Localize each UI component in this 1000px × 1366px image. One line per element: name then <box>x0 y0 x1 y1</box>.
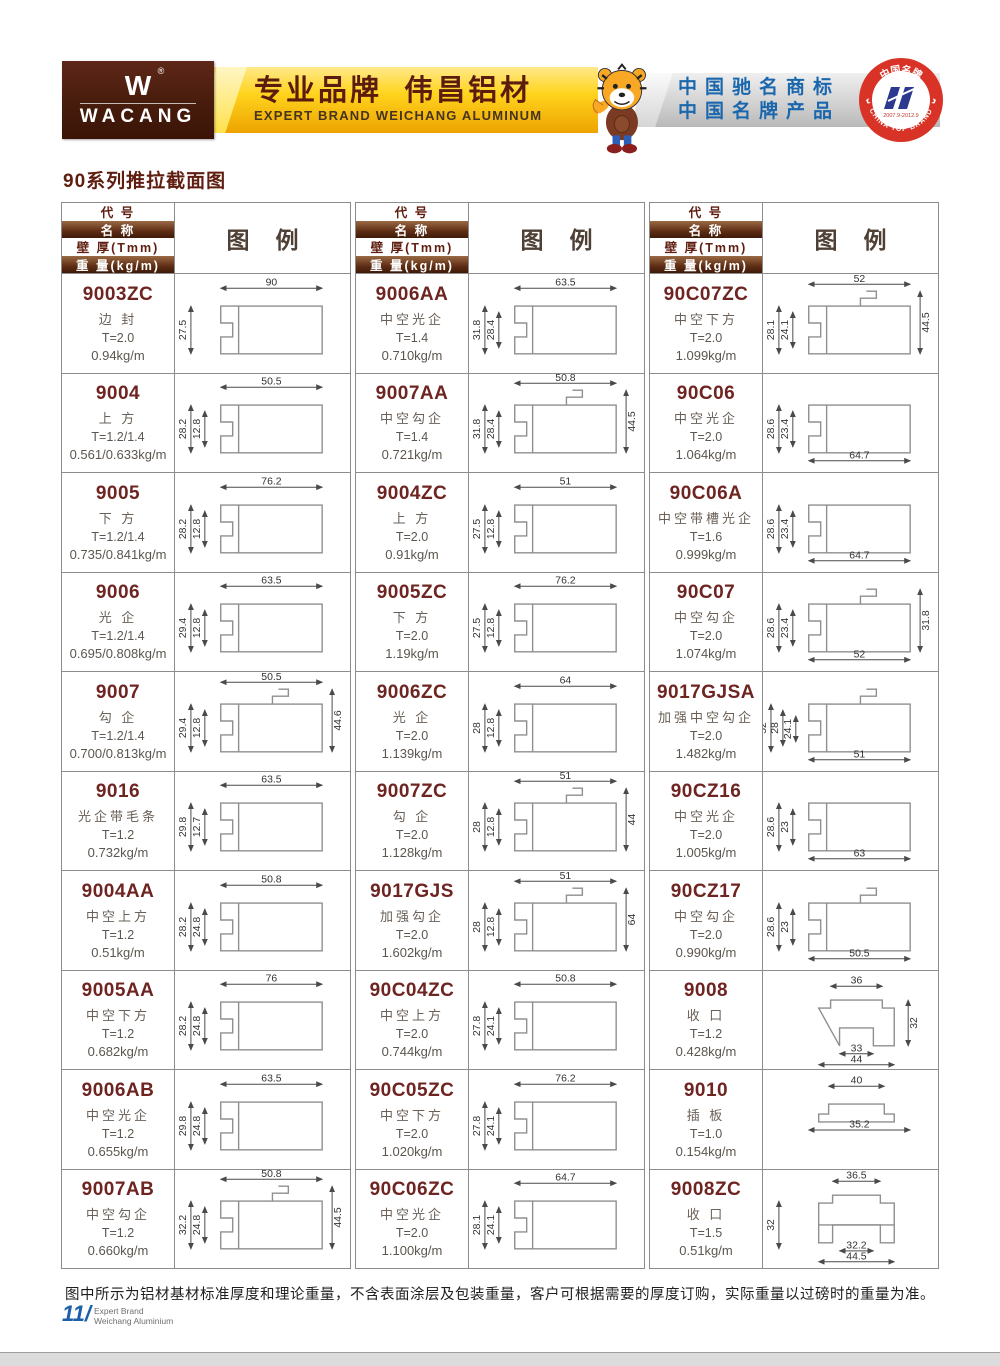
product-name: 中空勾企 <box>674 607 738 626</box>
product-info: 90C04ZC中空上方T=2.00.744kg/m <box>356 970 468 1070</box>
product-thickness: T=2.0 <box>102 331 134 345</box>
svg-text:24.1: 24.1 <box>486 1016 497 1037</box>
product-code: 90C04ZC <box>370 980 455 1002</box>
product-name: 光 企 <box>393 707 432 726</box>
product-thickness: T=2.0 <box>690 828 722 842</box>
product-info: 9006光 企T=1.2/1.40.695/0.808kg/m <box>62 572 174 672</box>
product-weight: 0.732kg/m <box>88 845 149 860</box>
svg-text:24.8: 24.8 <box>192 1115 203 1136</box>
footer-note: 图中所示为铝材基材标准厚度和理论重量，不含表面涂层及包装重量，客户可根据需要的厚… <box>0 1283 1000 1304</box>
profile-diagram: 50.831.828.444.5 <box>468 373 644 473</box>
profile-column-1: 代 号名 称壁 厚(Tmm)重 量(kg/m)图例9003ZC边 封T=2.00… <box>61 202 351 1269</box>
profile-column-2: 代 号名 称壁 厚(Tmm)重 量(kg/m)图例9006AA中空光企T=1.4… <box>355 202 645 1269</box>
product-weight: 0.999kg/m <box>676 547 737 562</box>
product-thickness: T=2.0 <box>690 430 722 444</box>
profile-diagram: 28.623.464.7 <box>762 472 938 572</box>
product-thickness: T=2.0 <box>396 729 428 743</box>
product-info: 90C07ZC中空下方T=2.01.099kg/m <box>650 273 762 373</box>
svg-text:28: 28 <box>472 722 483 734</box>
svg-text:51: 51 <box>560 476 572 487</box>
product-code: 90CZ17 <box>671 881 742 903</box>
svg-text:12.8: 12.8 <box>192 419 203 440</box>
product-info: 9006AB中空光企T=1.20.655kg/m <box>62 1069 174 1169</box>
profile-diagram: 64.728.124.1 <box>468 1169 644 1269</box>
registered-mark: ® <box>158 67 165 76</box>
svg-text:31.8: 31.8 <box>921 610 932 631</box>
profile-diagram: 50.528.212.8 <box>174 373 350 473</box>
product-name: 上 方 <box>99 408 138 427</box>
slogan-chinese: 专业品牌 伟昌铝材 <box>254 77 598 107</box>
profile-diagram: 76.227.824.1 <box>468 1069 644 1169</box>
product-weight: 1.005kg/m <box>676 845 737 860</box>
header-code: 代 号 <box>356 203 468 221</box>
honor-banner: 中国驰名商标 中国名牌产品 中国名牌 CHINA TOP BRAND 2007.… <box>644 73 940 127</box>
product-code: 9008 <box>684 980 728 1002</box>
product-weight: 0.51kg/m <box>679 1243 732 1258</box>
svg-text:44.5: 44.5 <box>846 1252 867 1263</box>
product-code: 90CZ16 <box>671 781 742 803</box>
product-code: 9007ZC <box>377 781 448 803</box>
product-name: 中空下方 <box>380 1105 444 1124</box>
profile-diagram: 5127.512.8 <box>468 472 644 572</box>
svg-text:31.8: 31.8 <box>472 319 483 340</box>
profile-diagram: 50.832.224.844.5 <box>174 1169 350 1269</box>
product-name: 勾 企 <box>393 806 432 825</box>
svg-text:64.7: 64.7 <box>555 1173 576 1184</box>
profile-diagram: 5228.124.144.5 <box>762 273 938 373</box>
product-code: 90C05ZC <box>370 1080 455 1102</box>
profile-column-3: 代 号名 称壁 厚(Tmm)重 量(kg/m)图例90C07ZC中空下方T=2.… <box>649 202 939 1269</box>
product-thickness: T=1.2 <box>102 1226 134 1240</box>
header-weight: 重 量(kg/m) <box>356 256 468 274</box>
product-info: 9007AA中空勾企T=1.40.721kg/m <box>356 373 468 473</box>
product-thickness: T=2.0 <box>690 629 722 643</box>
header-code: 代 号 <box>650 203 762 221</box>
header-legend: 图例 <box>468 203 644 273</box>
product-thickness: T=2.0 <box>396 629 428 643</box>
product-thickness: T=1.2 <box>102 1027 134 1041</box>
svg-text:12.8: 12.8 <box>192 717 203 738</box>
svg-text:76.2: 76.2 <box>555 1073 576 1084</box>
svg-text:63: 63 <box>854 849 866 860</box>
svg-text:51: 51 <box>560 771 572 782</box>
product-info: 9017GJS加强勾企T=2.01.602kg/m <box>356 870 468 970</box>
product-name: 中空上方 <box>86 906 150 925</box>
header-legend: 图例 <box>174 203 350 273</box>
svg-text:32.2: 32.2 <box>178 1215 189 1236</box>
product-code: 9016 <box>96 781 140 803</box>
product-weight: 0.700/0.813kg/m <box>70 746 167 761</box>
product-code: 9003ZC <box>83 284 154 306</box>
svg-text:27.5: 27.5 <box>472 518 483 539</box>
profile-diagram: 36.53232.244.5 <box>762 1169 938 1269</box>
product-name: 光 企 <box>99 607 138 626</box>
product-name: 中空光企 <box>380 309 444 328</box>
svg-text:28.6: 28.6 <box>766 618 777 639</box>
svg-text:50.5: 50.5 <box>261 377 282 388</box>
profile-diagram: 4035.2 <box>762 1069 938 1169</box>
header-code: 代 号 <box>62 203 174 221</box>
product-name: 勾 企 <box>99 707 138 726</box>
svg-text:28: 28 <box>770 722 781 734</box>
svg-text:33: 33 <box>851 1044 863 1055</box>
profile-diagram: 28.62350.5 <box>762 870 938 970</box>
svg-text:28.2: 28.2 <box>178 916 189 937</box>
header-name: 名 称 <box>356 221 468 239</box>
product-info: 9006ZC光 企T=2.01.139kg/m <box>356 671 468 771</box>
product-thickness: T=1.4 <box>396 430 428 444</box>
header-thickness: 壁 厚(Tmm) <box>650 238 762 256</box>
svg-text:64: 64 <box>560 675 572 686</box>
svg-text:27.5: 27.5 <box>178 319 189 340</box>
product-info: 9010插 板T=1.00.154kg/m <box>650 1069 762 1169</box>
svg-text:44.5: 44.5 <box>921 312 932 333</box>
product-info: 9005AA中空下方T=1.20.682kg/m <box>62 970 174 1070</box>
product-weight: 0.154kg/m <box>676 1144 737 1159</box>
product-weight: 1.139kg/m <box>382 746 443 761</box>
page-title: 90系列推拉截面图 <box>63 166 226 193</box>
product-weight: 0.655kg/m <box>88 1144 149 1159</box>
product-thickness: T=1.2 <box>102 828 134 842</box>
product-weight: 0.990kg/m <box>676 945 737 960</box>
svg-text:29.4: 29.4 <box>178 618 189 639</box>
product-name: 中空下方 <box>674 309 738 328</box>
svg-text:27.8: 27.8 <box>472 1016 483 1037</box>
page-number-block: 11 / Expert Brand Weichang Aluminium <box>62 1303 173 1326</box>
product-info: 9005下 方T=1.2/1.40.735/0.841kg/m <box>62 472 174 572</box>
profile-diagram: 512812.844 <box>468 771 644 871</box>
column-header: 代 号名 称壁 厚(Tmm)重 量(kg/m) <box>356 203 468 273</box>
profile-diagram: 63.531.828.4 <box>468 273 644 373</box>
product-info: 9005ZC下 方T=2.01.19kg/m <box>356 572 468 672</box>
product-thickness: T=1.0 <box>690 1127 722 1141</box>
product-weight: 1.074kg/m <box>676 646 737 661</box>
product-weight: 0.94kg/m <box>91 348 144 363</box>
china-top-brand-badge: 中国名牌 CHINA TOP BRAND 2007.9-2012.9 <box>858 57 944 143</box>
svg-text:63.5: 63.5 <box>555 277 576 288</box>
product-thickness: T=2.0 <box>396 1226 428 1240</box>
svg-text:23.4: 23.4 <box>780 518 791 539</box>
header-legend: 图例 <box>762 203 938 273</box>
svg-text:90: 90 <box>266 277 278 288</box>
product-thickness: T=2.0 <box>396 530 428 544</box>
product-code: 9004AA <box>82 881 155 903</box>
product-thickness: T=1.2/1.4 <box>91 629 144 643</box>
svg-text:29.8: 29.8 <box>178 1115 189 1136</box>
product-info: 9003ZC边 封T=2.00.94kg/m <box>62 273 174 373</box>
product-thickness: T=2.0 <box>396 1027 428 1041</box>
product-weight: 1.482kg/m <box>676 746 737 761</box>
svg-text:24.1: 24.1 <box>780 319 791 340</box>
product-code: 9017GJSA <box>657 682 755 704</box>
profile-table: 代 号名 称壁 厚(Tmm)重 量(kg/m)图例9003ZC边 封T=2.00… <box>61 202 939 1269</box>
product-info: 9004AA中空上方T=1.20.51kg/m <box>62 870 174 970</box>
svg-text:12.8: 12.8 <box>486 916 497 937</box>
svg-text:12.8: 12.8 <box>192 618 203 639</box>
product-name: 中空勾企 <box>380 408 444 427</box>
svg-text:50.8: 50.8 <box>261 1169 282 1180</box>
product-name: 收 口 <box>687 1005 726 1024</box>
profile-diagram: 63.529.412.8 <box>174 572 350 672</box>
product-name: 加强勾企 <box>380 906 444 925</box>
svg-text:24.1: 24.1 <box>486 1115 497 1136</box>
footer-brand: Expert Brand Weichang Aluminium <box>94 1306 173 1326</box>
svg-text:50.5: 50.5 <box>261 672 282 683</box>
profile-diagram: 28.62363 <box>762 771 938 871</box>
product-name: 下 方 <box>99 508 138 527</box>
svg-text:28: 28 <box>472 821 483 833</box>
product-info: 90C07中空勾企T=2.01.074kg/m <box>650 572 762 672</box>
product-thickness: T=1.2 <box>102 928 134 942</box>
product-thickness: T=2.0 <box>690 928 722 942</box>
product-info: 90C05ZC中空下方T=2.01.020kg/m <box>356 1069 468 1169</box>
svg-text:28.2: 28.2 <box>178 518 189 539</box>
svg-text:50.8: 50.8 <box>555 974 576 985</box>
svg-text:52: 52 <box>763 722 769 734</box>
product-code: 9004ZC <box>377 483 448 505</box>
product-code: 90C07ZC <box>664 284 749 306</box>
svg-text:28.1: 28.1 <box>766 319 777 340</box>
page-number: 11 <box>62 1303 85 1325</box>
product-weight: 0.660kg/m <box>88 1243 149 1258</box>
svg-text:63.5: 63.5 <box>261 775 282 786</box>
product-name: 中空光企 <box>86 1105 150 1124</box>
svg-text:32: 32 <box>909 1017 920 1029</box>
wacang-logo-icon: W® <box>125 72 151 100</box>
product-code: 9005ZC <box>377 582 448 604</box>
product-weight: 1.020kg/m <box>382 1144 443 1159</box>
svg-text:76: 76 <box>266 974 278 985</box>
header-weight: 重 量(kg/m) <box>650 256 762 274</box>
profile-diagram: 50.529.412.844.6 <box>174 671 350 771</box>
product-name: 中空上方 <box>380 1005 444 1024</box>
svg-text:44: 44 <box>851 1055 863 1066</box>
product-code: 90C06 <box>677 383 736 405</box>
svg-text:28.1: 28.1 <box>472 1215 483 1236</box>
product-thickness: T=1.2/1.4 <box>91 729 144 743</box>
product-weight: 1.100kg/m <box>382 1243 443 1258</box>
svg-text:50.5: 50.5 <box>849 948 870 959</box>
svg-text:64.7: 64.7 <box>849 451 870 462</box>
product-weight: 0.721kg/m <box>382 447 443 462</box>
svg-text:29.8: 29.8 <box>178 817 189 838</box>
slogan-english: EXPERT BRAND WEICHANG ALUMINUM <box>254 108 598 123</box>
product-name: 收 口 <box>687 1204 726 1223</box>
svg-text:28: 28 <box>472 921 483 933</box>
product-info: 9004上 方T=1.2/1.40.561/0.633kg/m <box>62 373 174 473</box>
product-thickness: T=2.0 <box>690 729 722 743</box>
profile-diagram: 28.623.464.7 <box>762 373 938 473</box>
footer-brand-line1: Expert Brand <box>94 1306 144 1316</box>
product-code: 9006ZC <box>377 682 448 704</box>
product-info: 9007ZC勾 企T=2.01.128kg/m <box>356 771 468 871</box>
product-thickness: T=1.4 <box>396 331 428 345</box>
product-weight: 1.099kg/m <box>676 348 737 363</box>
svg-text:32: 32 <box>766 1219 777 1231</box>
svg-text:52: 52 <box>854 650 866 661</box>
svg-text:44.5: 44.5 <box>627 411 638 432</box>
svg-text:23: 23 <box>780 921 791 933</box>
product-code: 9007AB <box>82 1179 155 1201</box>
product-weight: 0.710kg/m <box>382 348 443 363</box>
profile-diagram: 63.529.824.8 <box>174 1069 350 1169</box>
column-header: 代 号名 称壁 厚(Tmm)重 量(kg/m) <box>62 203 174 273</box>
svg-text:28.2: 28.2 <box>178 419 189 440</box>
svg-text:28.4: 28.4 <box>486 419 497 440</box>
product-name: 中空光企 <box>674 806 738 825</box>
svg-text:12.8: 12.8 <box>486 817 497 838</box>
page-number-slash: / <box>85 1303 91 1325</box>
product-weight: 1.19kg/m <box>385 646 438 661</box>
product-code: 9006AA <box>376 284 449 306</box>
product-thickness: T=2.0 <box>396 828 428 842</box>
product-weight: 0.735/0.841kg/m <box>70 547 167 562</box>
product-code: 9006AB <box>82 1080 155 1102</box>
product-name: 插 板 <box>687 1105 726 1124</box>
svg-text:64: 64 <box>627 913 638 925</box>
product-info: 9004ZC上 方T=2.00.91kg/m <box>356 472 468 572</box>
svg-text:32.2: 32.2 <box>846 1241 867 1252</box>
profile-diagram: 76.228.212.8 <box>174 472 350 572</box>
svg-text:76.2: 76.2 <box>555 576 576 587</box>
svg-text:50.8: 50.8 <box>555 373 576 384</box>
svg-text:36: 36 <box>851 976 863 987</box>
wacang-logo: W® WACANG <box>62 61 214 139</box>
product-info: 9016光企带毛条T=1.20.732kg/m <box>62 771 174 871</box>
svg-text:12.8: 12.8 <box>192 518 203 539</box>
svg-text:28.6: 28.6 <box>766 419 777 440</box>
profile-diagram: 28.623.431.852 <box>762 572 938 672</box>
product-thickness: T=1.2/1.4 <box>91 530 144 544</box>
product-name: 中空光企 <box>674 408 738 427</box>
profile-diagram: 7628.224.8 <box>174 970 350 1070</box>
svg-text:64.7: 64.7 <box>849 550 870 561</box>
svg-text:51: 51 <box>560 871 572 882</box>
product-thickness: T=1.2 <box>102 1127 134 1141</box>
svg-text:28.6: 28.6 <box>766 518 777 539</box>
header-name: 名 称 <box>650 221 762 239</box>
header-weight: 重 量(kg/m) <box>62 256 174 274</box>
profile-diagram: 36323344 <box>762 970 938 1070</box>
svg-text:31.8: 31.8 <box>472 419 483 440</box>
svg-text:35.2: 35.2 <box>849 1119 870 1130</box>
svg-text:24.1: 24.1 <box>783 718 794 739</box>
product-info: 9007AB中空勾企T=1.20.660kg/m <box>62 1169 174 1269</box>
svg-text:44.6: 44.6 <box>333 710 344 731</box>
product-weight: 1.128kg/m <box>382 845 443 860</box>
profile-diagram: 9027.5 <box>174 273 350 373</box>
product-weight: 0.51kg/m <box>91 945 144 960</box>
badge-years: 2007.9-2012.9 <box>883 113 918 119</box>
svg-text:24.8: 24.8 <box>192 1215 203 1236</box>
svg-text:28.6: 28.6 <box>766 817 777 838</box>
svg-text:29.4: 29.4 <box>178 717 189 738</box>
footer-brand-line2: Weichang Aluminium <box>94 1316 173 1326</box>
svg-text:44.5: 44.5 <box>333 1207 344 1228</box>
header-name: 名 称 <box>62 221 174 239</box>
product-code: 9008ZC <box>671 1179 742 1201</box>
product-info: 90C06ZC中空光企T=2.01.100kg/m <box>356 1169 468 1269</box>
profile-diagram: 522824.151 <box>762 671 938 771</box>
svg-text:23: 23 <box>780 821 791 833</box>
svg-text:36.5: 36.5 <box>846 1171 867 1182</box>
product-info: 9008ZC收 口T=1.50.51kg/m <box>650 1169 762 1269</box>
product-code: 9017GJS <box>370 881 454 903</box>
wacang-logo-text: WACANG <box>80 103 197 128</box>
svg-text:28.4: 28.4 <box>486 319 497 340</box>
slogan-banner: 专业品牌 伟昌铝材 EXPERT BRAND WEICHANG ALUMINUM <box>214 67 598 133</box>
header-thickness: 壁 厚(Tmm) <box>62 238 174 256</box>
top-banner: W® WACANG 专业品牌 伟昌铝材 EXPERT BRAND WEICHAN… <box>62 60 940 140</box>
product-info: 90C06A中空带槽光企T=1.60.999kg/m <box>650 472 762 572</box>
product-code: 9007AA <box>376 383 449 405</box>
svg-text:50.8: 50.8 <box>261 874 282 885</box>
product-code: 90C06ZC <box>370 1179 455 1201</box>
svg-text:40: 40 <box>851 1075 863 1086</box>
product-code: 9004 <box>96 383 140 405</box>
svg-text:12.8: 12.8 <box>486 717 497 738</box>
product-weight: 0.91kg/m <box>385 547 438 562</box>
product-code: 9010 <box>684 1080 728 1102</box>
product-weight: 0.428kg/m <box>676 1044 737 1059</box>
svg-text:44: 44 <box>627 814 638 826</box>
product-name: 中空勾企 <box>86 1204 150 1223</box>
product-name: 上 方 <box>393 508 432 527</box>
product-thickness: T=1.6 <box>690 530 722 544</box>
product-info: 9008收 口T=1.20.428kg/m <box>650 970 762 1070</box>
product-thickness: T=2.0 <box>396 1127 428 1141</box>
tiger-mascot-icon <box>588 62 654 156</box>
product-weight: 0.561/0.633kg/m <box>70 447 167 462</box>
product-code: 9005 <box>96 483 140 505</box>
product-thickness: T=2.0 <box>396 928 428 942</box>
column-header: 代 号名 称壁 厚(Tmm)重 量(kg/m) <box>650 203 762 273</box>
product-name: 中空光企 <box>380 1204 444 1223</box>
product-name: 加强中空勾企 <box>658 707 754 726</box>
product-info: 90CZ16中空光企T=2.01.005kg/m <box>650 771 762 871</box>
svg-text:24.1: 24.1 <box>486 1215 497 1236</box>
product-name: 光企带毛条 <box>78 806 158 825</box>
svg-text:24.8: 24.8 <box>192 1016 203 1037</box>
svg-text:23.4: 23.4 <box>780 419 791 440</box>
svg-text:51: 51 <box>854 749 866 760</box>
product-name: 边 封 <box>99 309 138 328</box>
product-name: 中空勾企 <box>674 906 738 925</box>
product-info: 90C06中空光企T=2.01.064kg/m <box>650 373 762 473</box>
product-code: 9005AA <box>82 980 155 1002</box>
page-bottom-edge <box>0 1352 1000 1366</box>
product-weight: 0.744kg/m <box>382 1044 443 1059</box>
svg-text:27.5: 27.5 <box>472 618 483 639</box>
svg-text:12.8: 12.8 <box>486 518 497 539</box>
product-name: 下 方 <box>393 607 432 626</box>
svg-text:23.4: 23.4 <box>780 618 791 639</box>
product-weight: 0.682kg/m <box>88 1044 149 1059</box>
product-code: 90C07 <box>677 582 736 604</box>
profile-diagram: 512812.864 <box>468 870 644 970</box>
product-thickness: T=1.5 <box>690 1226 722 1240</box>
product-name: 中空下方 <box>86 1005 150 1024</box>
header-thickness: 壁 厚(Tmm) <box>356 238 468 256</box>
profile-diagram: 50.827.824.1 <box>468 970 644 1070</box>
product-info: 9007勾 企T=1.2/1.40.700/0.813kg/m <box>62 671 174 771</box>
product-weight: 1.602kg/m <box>382 945 443 960</box>
svg-text:12.7: 12.7 <box>192 817 203 838</box>
product-code: 9006 <box>96 582 140 604</box>
svg-text:27.8: 27.8 <box>472 1115 483 1136</box>
profile-diagram: 63.529.812.7 <box>174 771 350 871</box>
svg-text:28.6: 28.6 <box>766 916 777 937</box>
